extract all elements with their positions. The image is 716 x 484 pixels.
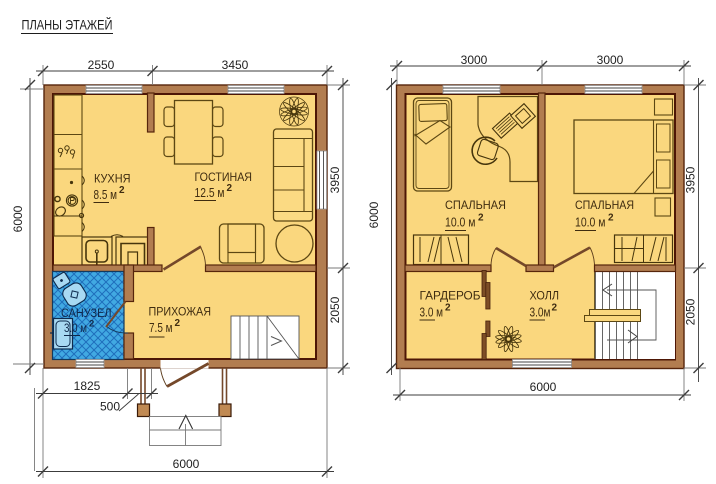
svg-text:3950: 3950: [684, 166, 698, 193]
svg-text:3.0 м: 3.0 м: [420, 306, 444, 320]
svg-text:2: 2: [227, 183, 233, 194]
svg-text:3450: 3450: [222, 58, 249, 72]
svg-text:10.0 м: 10.0 м: [575, 216, 606, 230]
svg-text:2: 2: [478, 213, 484, 224]
svg-text:САНУЗЕЛ: САНУЗЕЛ: [61, 308, 112, 320]
svg-text:КУХНЯ: КУХНЯ: [94, 172, 131, 186]
svg-text:ГОСТИНАЯ: ГОСТИНАЯ: [195, 170, 253, 184]
svg-text:12.5 м: 12.5 м: [195, 186, 225, 200]
svg-text:ПРИХОЖАЯ: ПРИХОЖАЯ: [149, 305, 212, 319]
svg-text:2: 2: [175, 318, 181, 329]
svg-text:8.5 м: 8.5 м: [94, 188, 118, 202]
svg-text:СПАЛЬНАЯ: СПАЛЬНАЯ: [445, 198, 506, 212]
svg-text:3000: 3000: [597, 53, 624, 67]
svg-text:3000: 3000: [461, 53, 488, 67]
svg-text:3950: 3950: [328, 166, 342, 193]
svg-text:500: 500: [100, 400, 120, 414]
svg-text:ГАРДЕРОБ: ГАРДЕРОБ: [420, 289, 481, 303]
svg-text:ХОЛЛ: ХОЛЛ: [530, 289, 560, 303]
svg-text:7.5 м: 7.5 м: [149, 321, 173, 335]
svg-text:10.0 м: 10.0 м: [445, 216, 476, 230]
svg-text:2: 2: [119, 185, 125, 196]
svg-text:6000: 6000: [11, 205, 25, 232]
svg-text:2: 2: [445, 303, 451, 314]
svg-text:2550: 2550: [88, 58, 115, 72]
svg-text:2050: 2050: [684, 298, 698, 325]
svg-text:3.0 м: 3.0 м: [64, 321, 87, 335]
svg-text:3.0м: 3.0м: [530, 306, 551, 320]
svg-text:1825: 1825: [74, 379, 101, 393]
svg-text:2: 2: [608, 213, 614, 224]
svg-text:6000: 6000: [530, 380, 557, 394]
svg-text:ПЛАНЫ ЭТАЖЕЙ: ПЛАНЫ ЭТАЖЕЙ: [22, 16, 113, 33]
svg-text:2050: 2050: [328, 296, 342, 323]
svg-text:2: 2: [552, 303, 558, 314]
svg-text:СПАЛЬНАЯ: СПАЛЬНАЯ: [575, 198, 634, 212]
svg-text:6000: 6000: [173, 457, 200, 471]
svg-text:6000: 6000: [367, 201, 381, 228]
svg-text:2: 2: [89, 319, 94, 330]
